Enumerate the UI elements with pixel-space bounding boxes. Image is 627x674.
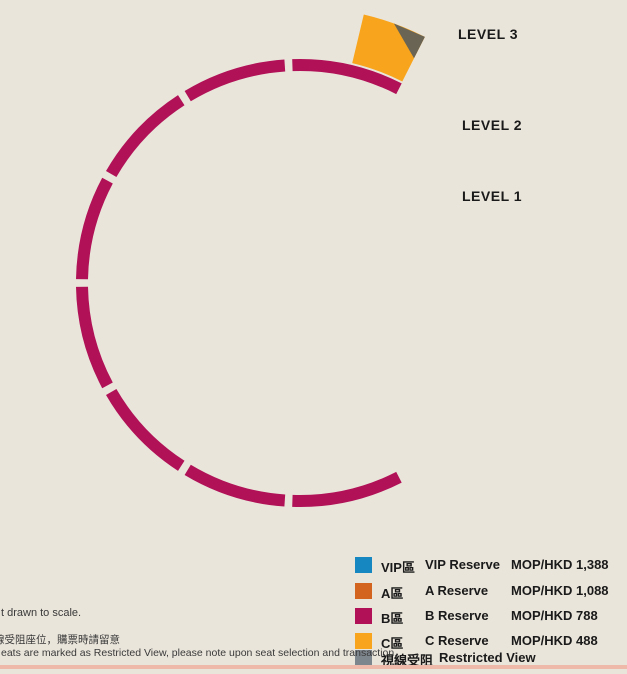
tier-b-thin-arc xyxy=(292,472,402,507)
tier-b-thin-arc xyxy=(106,95,185,177)
tier-b-thin-arc xyxy=(76,287,113,389)
tier-b-thin-arc xyxy=(76,178,113,279)
seating-map xyxy=(0,0,627,669)
tier-b-thin-arc xyxy=(106,389,185,471)
tier-b-thin-arc xyxy=(185,60,286,102)
tier-b-thin-arc xyxy=(185,465,286,507)
